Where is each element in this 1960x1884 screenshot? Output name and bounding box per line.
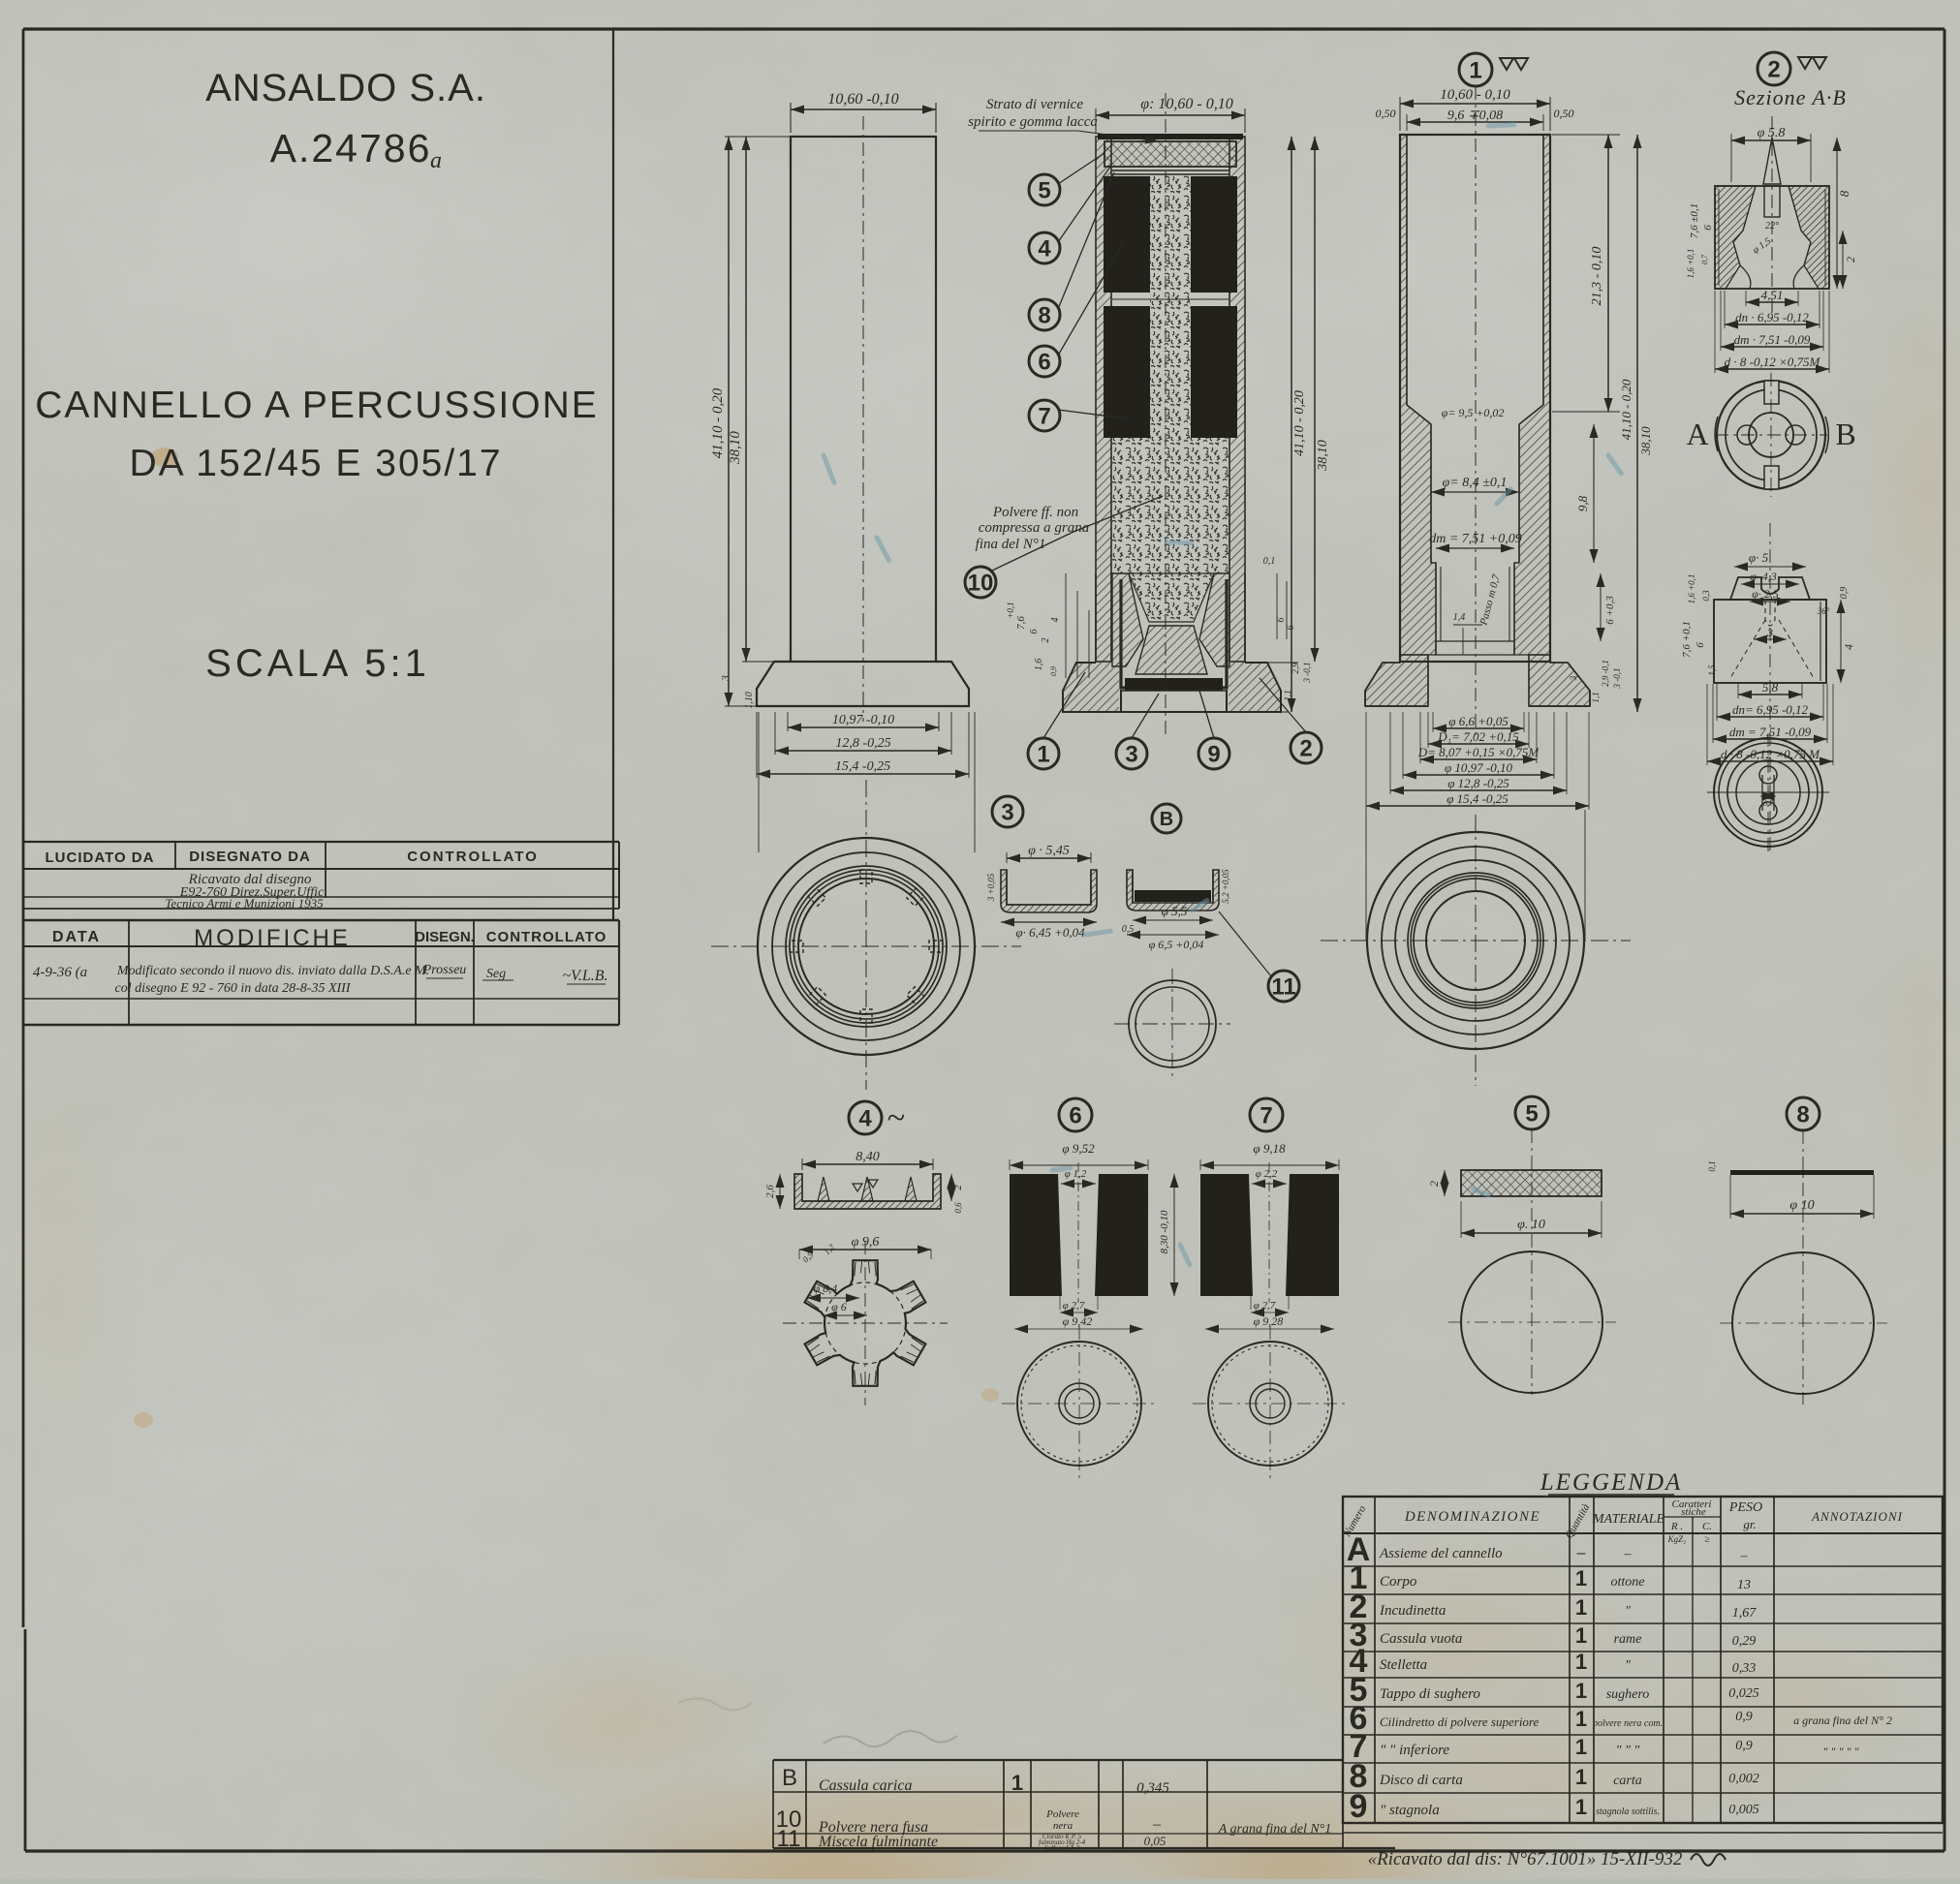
svg-text:0,29: 0,29 xyxy=(1732,1634,1757,1649)
svg-text:–: – xyxy=(1624,1547,1633,1561)
svg-text:38,10: 38,10 xyxy=(728,431,743,465)
svg-text:2: 2 xyxy=(1767,57,1780,83)
svg-text:φ 9,52: φ 9,52 xyxy=(1062,1141,1095,1156)
svg-text:6: 6 xyxy=(1695,642,1706,648)
svg-text:0,05: 0,05 xyxy=(1144,1834,1167,1848)
svg-text:φ 9,28: φ 9,28 xyxy=(1254,1314,1284,1328)
svg-text:compressa a grana: compressa a grana xyxy=(979,520,1089,536)
svg-text:1: 1 xyxy=(1575,1707,1587,1731)
svg-text:R .: R . xyxy=(1670,1521,1683,1532)
svg-text:38,10: 38,10 xyxy=(1638,426,1653,456)
svg-text:φ 9,42: φ 9,42 xyxy=(1063,1314,1093,1328)
svg-text:CANNELLO A PERCUSSIONE: CANNELLO A PERCUSSIONE xyxy=(35,385,599,426)
svg-text:2: 2 xyxy=(1844,257,1857,263)
svg-text:MODIFICHE: MODIFICHE xyxy=(194,925,351,951)
svg-text:DENOMINAZIONE: DENOMINAZIONE xyxy=(1404,1509,1540,1525)
svg-text:φ 9,18: φ 9,18 xyxy=(1253,1141,1286,1156)
svg-text:A: A xyxy=(1686,417,1708,451)
svg-text:13: 13 xyxy=(1737,1578,1751,1592)
svg-text:21,3 - 0,10: 21,3 - 0,10 xyxy=(1590,247,1604,306)
svg-text:stagnola sottilis.: stagnola sottilis. xyxy=(1596,1807,1660,1817)
svg-text:«Ricavato dal dis: N°67.1001»: «Ricavato dal dis: N°67.1001» 15-XII-932 xyxy=(1368,1849,1683,1869)
svg-text:7,6 ±0,1: 7,6 ±0,1 xyxy=(1689,203,1700,238)
svg-text:5: 5 xyxy=(1525,1101,1538,1127)
svg-text:d · 8 -0,12 ×0,75M: d · 8 -0,12 ×0,75M xyxy=(1725,355,1821,369)
svg-text:Tappo di sughero: Tappo di sughero xyxy=(1380,1686,1480,1702)
svg-text:22°: 22° xyxy=(1765,221,1779,232)
svg-text:A grana fina del N°1: A grana fina del N°1 xyxy=(1218,1822,1332,1837)
svg-text:0,5: 0,5 xyxy=(1122,924,1135,935)
svg-text:1,1: 1,1 xyxy=(1283,690,1292,700)
svg-text:φ 15,4 -0,25: φ 15,4 -0,25 xyxy=(1447,791,1509,806)
svg-text:DISEGN.: DISEGN. xyxy=(415,929,475,945)
svg-text:Polvere: Polvere xyxy=(1045,1808,1079,1820)
svg-text:" " inferiore: " " inferiore xyxy=(1380,1743,1449,1758)
svg-text:7: 7 xyxy=(1260,1103,1272,1129)
svg-text:D₁= 7,02 +0,15: D₁= 7,02 +0,15 xyxy=(1437,729,1519,744)
svg-text:8: 8 xyxy=(1837,190,1851,197)
svg-text:1: 1 xyxy=(1575,1735,1587,1759)
svg-text:9,8: 9,8 xyxy=(1575,495,1590,511)
svg-text:φ· 4,3: φ· 4,3 xyxy=(1750,570,1777,583)
svg-text:φ= 8,4 ±0,1: φ= 8,4 ±0,1 xyxy=(1443,476,1508,490)
svg-text:Cassula carica: Cassula carica xyxy=(819,1777,912,1794)
svg-text:1: 1 xyxy=(1575,1595,1587,1620)
svg-text:Strato di vernice: Strato di vernice xyxy=(986,97,1083,112)
svg-text:2: 2 xyxy=(1427,1181,1441,1187)
svg-text:" " ": " " " xyxy=(1616,1744,1640,1758)
svg-text:dm · 7,51 -0,09: dm · 7,51 -0,09 xyxy=(1734,332,1811,347)
svg-text:polvere nera com.: polvere nera com. xyxy=(1592,1718,1663,1729)
svg-text:4,51: 4,51 xyxy=(1761,288,1784,302)
svg-text:Incudinetta: Incudinetta xyxy=(1379,1603,1446,1619)
svg-text:1,10: 1,10 xyxy=(744,692,755,709)
svg-text:41,10 - 0,20: 41,10 - 0,20 xyxy=(1619,379,1633,440)
svg-text:6: 6 xyxy=(1038,350,1050,376)
svg-text:3 +0,05: 3 +0,05 xyxy=(986,873,996,902)
svg-text:1: 1 xyxy=(1575,1679,1587,1703)
svg-text:~V.L.B.: ~V.L.B. xyxy=(562,968,607,984)
svg-text:Stelletta: Stelletta xyxy=(1380,1657,1427,1673)
svg-text:38,10: 38,10 xyxy=(1316,440,1330,472)
svg-text:φ 5.8: φ 5.8 xyxy=(1758,126,1786,140)
svg-text:φ 2,7: φ 2,7 xyxy=(1063,1300,1085,1312)
svg-text:" " " " ": " " " " " xyxy=(1822,1745,1859,1758)
svg-text:nera: nera xyxy=(1053,1820,1073,1832)
svg-text:1,6 +0,1: 1,6 +0,1 xyxy=(1686,249,1696,279)
svg-text:0,7: 0,7 xyxy=(1763,799,1774,808)
svg-text:LUCIDATO DA: LUCIDATO DA xyxy=(46,849,155,866)
svg-text:0,9: 0,9 xyxy=(1735,1739,1753,1753)
svg-text:3 -0,1: 3 -0,1 xyxy=(1302,663,1312,684)
svg-text:D= 8,07 +0,15 ×0,75M: D= 8,07 +0,15 ×0,75M xyxy=(1417,745,1540,759)
svg-text:1,4: 1,4 xyxy=(1453,612,1466,623)
svg-text:": " xyxy=(1625,1658,1631,1673)
svg-text:0,9: 0,9 xyxy=(1839,587,1850,600)
svg-text:41,10 - 0,20: 41,10 - 0,20 xyxy=(710,387,726,458)
svg-text:6: 6 xyxy=(1069,1103,1081,1129)
svg-text:CONTROLLATO: CONTROLLATO xyxy=(486,929,607,945)
svg-text:7,6 +0,1: 7,6 +0,1 xyxy=(1681,621,1693,658)
svg-text:8,40: 8,40 xyxy=(856,1150,880,1164)
svg-text:Polvere ff. non: Polvere ff. non xyxy=(992,505,1078,520)
svg-text:–: – xyxy=(1152,1816,1162,1833)
svg-text:gr.: gr. xyxy=(1743,1517,1756,1531)
svg-text:A.24786: A.24786 xyxy=(270,126,432,170)
svg-text:dm = 7,51 +0,09: dm = 7,51 +0,09 xyxy=(1429,532,1522,546)
svg-text:8,30 -0,10: 8,30 -0,10 xyxy=(1159,1210,1170,1253)
svg-text:0,3: 0,3 xyxy=(1701,590,1711,602)
svg-text:9,6 ∓0,08: 9,6 ∓0,08 xyxy=(1447,108,1503,123)
svg-text:10,97 -0,10: 10,97 -0,10 xyxy=(832,713,894,727)
svg-text:φ 6,5 +0,04: φ 6,5 +0,04 xyxy=(1149,938,1204,951)
svg-text:2: 2 xyxy=(1299,736,1312,762)
svg-text:5,8: 5,8 xyxy=(1762,680,1779,695)
svg-text:ANSALDO S.A.: ANSALDO S.A. xyxy=(205,67,486,109)
svg-text:0,50: 0,50 xyxy=(1554,107,1574,120)
svg-text:φ 2,7: φ 2,7 xyxy=(1254,1300,1276,1312)
svg-text:15,4 -0,25: 15,4 -0,25 xyxy=(835,759,890,774)
svg-text:φ 12,8 -0,25: φ 12,8 -0,25 xyxy=(1447,776,1509,790)
svg-text:5,2 +0,05: 5,2 +0,05 xyxy=(1221,869,1230,904)
svg-text:φ 8,4: φ 8,4 xyxy=(814,1282,838,1295)
svg-text:36°: 36° xyxy=(1817,606,1830,616)
svg-text:B: B xyxy=(1835,417,1855,451)
svg-text:0,9: 0,9 xyxy=(1735,1710,1753,1724)
svg-text:~: ~ xyxy=(887,1100,905,1136)
svg-text:3: 3 xyxy=(1125,742,1137,768)
svg-text:Solfuro S.b 2: Solfuro S.b 2 xyxy=(1044,1844,1080,1852)
svg-text:B: B xyxy=(1160,809,1173,830)
svg-text:spirito e gomma lacca: spirito e gomma lacca xyxy=(968,114,1098,130)
svg-text:1: 1 xyxy=(1575,1795,1587,1819)
svg-text:2: 2 xyxy=(952,1185,964,1190)
svg-text:0,7: 0,7 xyxy=(1700,254,1709,264)
svg-text:fina del N°1: fina del N°1 xyxy=(976,537,1046,552)
svg-text:0,025: 0,025 xyxy=(1728,1686,1759,1701)
svg-text:8: 8 xyxy=(1796,1102,1809,1128)
svg-text:3: 3 xyxy=(1766,626,1773,639)
svg-text:7: 7 xyxy=(1038,404,1050,430)
svg-text:CONTROLLATO: CONTROLLATO xyxy=(407,849,539,865)
svg-text:" stagnola: " stagnola xyxy=(1380,1803,1440,1818)
svg-text:10,60 - 0,10: 10,60 - 0,10 xyxy=(1440,87,1510,103)
svg-text:1: 1 xyxy=(1575,1650,1587,1674)
svg-text:sughero: sughero xyxy=(1606,1687,1650,1702)
svg-text:φ 2,2: φ 2,2 xyxy=(1256,1168,1278,1180)
svg-text:10: 10 xyxy=(968,571,994,597)
svg-text:φ 10: φ 10 xyxy=(1789,1198,1814,1213)
svg-text:2,6: 2,6 xyxy=(764,1185,776,1198)
svg-text:6: 6 xyxy=(1286,626,1296,631)
svg-text:0,002: 0,002 xyxy=(1728,1772,1759,1786)
svg-text:6: 6 xyxy=(1029,630,1040,634)
svg-text:9: 9 xyxy=(1207,742,1220,768)
svg-text:φ· 6,45 +0,04: φ· 6,45 +0,04 xyxy=(1015,925,1085,940)
svg-text:ANNOTAZIONI: ANNOTAZIONI xyxy=(1811,1509,1903,1524)
svg-text:dm = 7,51 -0,09: dm = 7,51 -0,09 xyxy=(1729,725,1812,739)
svg-text:0,005: 0,005 xyxy=(1728,1803,1759,1817)
svg-text:5: 5 xyxy=(1038,178,1050,204)
svg-text:DATA: DATA xyxy=(52,929,101,945)
svg-text:0,1: 0,1 xyxy=(1707,1160,1717,1171)
svg-text:DA 152/45 E 305/17: DA 152/45 E 305/17 xyxy=(129,443,502,484)
svg-text:rame: rame xyxy=(1614,1632,1642,1647)
svg-text:Sezione A·B: Sezione A·B xyxy=(1734,85,1847,109)
svg-text:KgZ₁: KgZ₁ xyxy=(1667,1534,1687,1544)
svg-text:4: 4 xyxy=(1038,236,1051,263)
svg-text:Miscela fulminante: Miscela fulminante xyxy=(818,1834,938,1850)
svg-text:1: 1 xyxy=(1575,1765,1587,1789)
svg-text:0,9: 0,9 xyxy=(1049,666,1058,676)
svg-text:0,33: 0,33 xyxy=(1732,1661,1757,1676)
svg-text:12,8 -0,25: 12,8 -0,25 xyxy=(835,736,890,751)
svg-text:3 -0,1: 3 -0,1 xyxy=(1612,668,1622,690)
svg-text:φ= 9,5 +0,02: φ= 9,5 +0,02 xyxy=(1442,406,1505,419)
svg-text:0,345: 0,345 xyxy=(1136,1780,1169,1796)
svg-text:1,67: 1,67 xyxy=(1732,1606,1758,1621)
svg-text:LEGGENDA: LEGGENDA xyxy=(1540,1469,1683,1496)
svg-text:41,10 - 0,20: 41,10 - 0,20 xyxy=(1292,390,1307,456)
svg-text:φ· 5: φ· 5 xyxy=(1749,550,1769,565)
svg-text:4: 4 xyxy=(1842,644,1855,650)
svg-text:3: 3 xyxy=(1569,675,1578,681)
svg-text:–: – xyxy=(1577,1545,1586,1561)
svg-text:Modificato secondo il nuovo di: Modificato secondo il nuovo dis. inviato… xyxy=(116,964,429,978)
svg-text:Cilindretto di polvere superio: Cilindretto di polvere superiore xyxy=(1380,1714,1540,1729)
svg-text:Cassula vuota: Cassula vuota xyxy=(1380,1631,1462,1647)
svg-text:Prosseu: Prosseu xyxy=(422,963,467,977)
svg-text:2,9 -0,1: 2,9 -0,1 xyxy=(1601,660,1610,687)
svg-text:a grana fina del N° 2: a grana fina del N° 2 xyxy=(1793,1714,1892,1727)
svg-text:1: 1 xyxy=(1469,58,1481,84)
svg-text:9: 9 xyxy=(1350,1788,1368,1825)
svg-text:DISEGNATO DA: DISEGNATO DA xyxy=(189,849,311,865)
svg-text:6: 6 xyxy=(1702,225,1714,231)
svg-text:6: 6 xyxy=(1276,618,1287,623)
svg-text:Seg: Seg xyxy=(486,967,506,981)
svg-text:Tecnico Armi e Munizioni 1935: Tecnico Armi e Munizioni 1935 xyxy=(165,896,324,911)
svg-text:0,1: 0,1 xyxy=(1263,556,1276,567)
svg-text:φ 5,5: φ 5,5 xyxy=(1162,904,1188,918)
svg-text:7,6: 7,6 xyxy=(1015,616,1027,630)
svg-text:a: a xyxy=(430,148,442,173)
svg-text:Disco di carta: Disco di carta xyxy=(1379,1773,1463,1788)
svg-text:PESO: PESO xyxy=(1728,1500,1762,1515)
svg-text:ottone: ottone xyxy=(1611,1575,1645,1590)
svg-text:col disegno E 92 - 760 in data: col disegno E 92 - 760 in data 28-8-35 X… xyxy=(114,981,351,996)
svg-text:6 +0,3: 6 +0,3 xyxy=(1604,596,1616,625)
svg-text:+0,1: +0,1 xyxy=(1006,602,1015,618)
svg-text:10,60 -0,10: 10,60 -0,10 xyxy=(827,91,898,108)
svg-text:dn= 6,95 -0,12: dn= 6,95 -0,12 xyxy=(1732,702,1809,717)
svg-text:2,9: 2,9 xyxy=(1291,663,1300,674)
svg-text:11: 11 xyxy=(1271,974,1295,1001)
svg-text:φ 6: φ 6 xyxy=(831,1300,847,1313)
svg-text:SCALA 5:1: SCALA 5:1 xyxy=(205,642,430,685)
svg-text:0,50: 0,50 xyxy=(1376,107,1396,120)
svg-text:carta: carta xyxy=(1613,1774,1642,1788)
svg-text:φ. 10: φ. 10 xyxy=(1517,1218,1545,1232)
svg-text:φ 6,6 +0,05: φ 6,6 +0,05 xyxy=(1448,714,1509,728)
svg-text:8: 8 xyxy=(1038,303,1050,329)
svg-text:dn · 6,95 -0,12: dn · 6,95 -0,12 xyxy=(1735,310,1809,324)
svg-text:Assieme del cannello: Assieme del cannello xyxy=(1379,1546,1503,1561)
svg-text:3: 3 xyxy=(1001,800,1013,826)
svg-text:11: 11 xyxy=(777,1826,801,1852)
svg-text:1: 1 xyxy=(1575,1566,1587,1591)
svg-text:MATERIALE: MATERIALE xyxy=(1592,1512,1665,1527)
svg-text:": " xyxy=(1625,1604,1631,1619)
svg-text:Corpo: Corpo xyxy=(1380,1574,1417,1590)
svg-text:stiche: stiche xyxy=(1681,1506,1706,1518)
svg-text:–: – xyxy=(1740,1549,1749,1563)
svg-text:4: 4 xyxy=(1050,618,1061,623)
svg-text:≥: ≥ xyxy=(1704,1534,1710,1545)
svg-text:φ · 5,45: φ · 5,45 xyxy=(1028,844,1070,858)
svg-text:3: 3 xyxy=(720,675,731,682)
svg-text:1: 1 xyxy=(1011,1771,1023,1795)
svg-text:1: 1 xyxy=(1037,742,1049,768)
svg-text:1,6 +0,1: 1,6 +0,1 xyxy=(1687,574,1696,604)
svg-text:1,5: 1,5 xyxy=(1707,664,1717,676)
svg-text:B: B xyxy=(782,1765,797,1791)
svg-text:C.: C. xyxy=(1702,1521,1712,1532)
svg-text:1,6: 1,6 xyxy=(1034,659,1044,671)
svg-text:1: 1 xyxy=(1575,1623,1587,1648)
svg-text:4-9-36 (a: 4-9-36 (a xyxy=(33,965,87,980)
svg-text:2: 2 xyxy=(1041,638,1051,643)
svg-text:4: 4 xyxy=(858,1106,872,1132)
svg-text:1,1: 1,1 xyxy=(1591,692,1601,702)
svg-text:φ 10,97 -0,10: φ 10,97 -0,10 xyxy=(1445,760,1513,775)
svg-text:0,6: 0,6 xyxy=(953,1202,963,1214)
svg-text:φ: 10,60 - 0,10: φ: 10,60 - 0,10 xyxy=(1140,96,1233,112)
svg-text:φ· 2,5: φ· 2,5 xyxy=(1752,587,1779,601)
